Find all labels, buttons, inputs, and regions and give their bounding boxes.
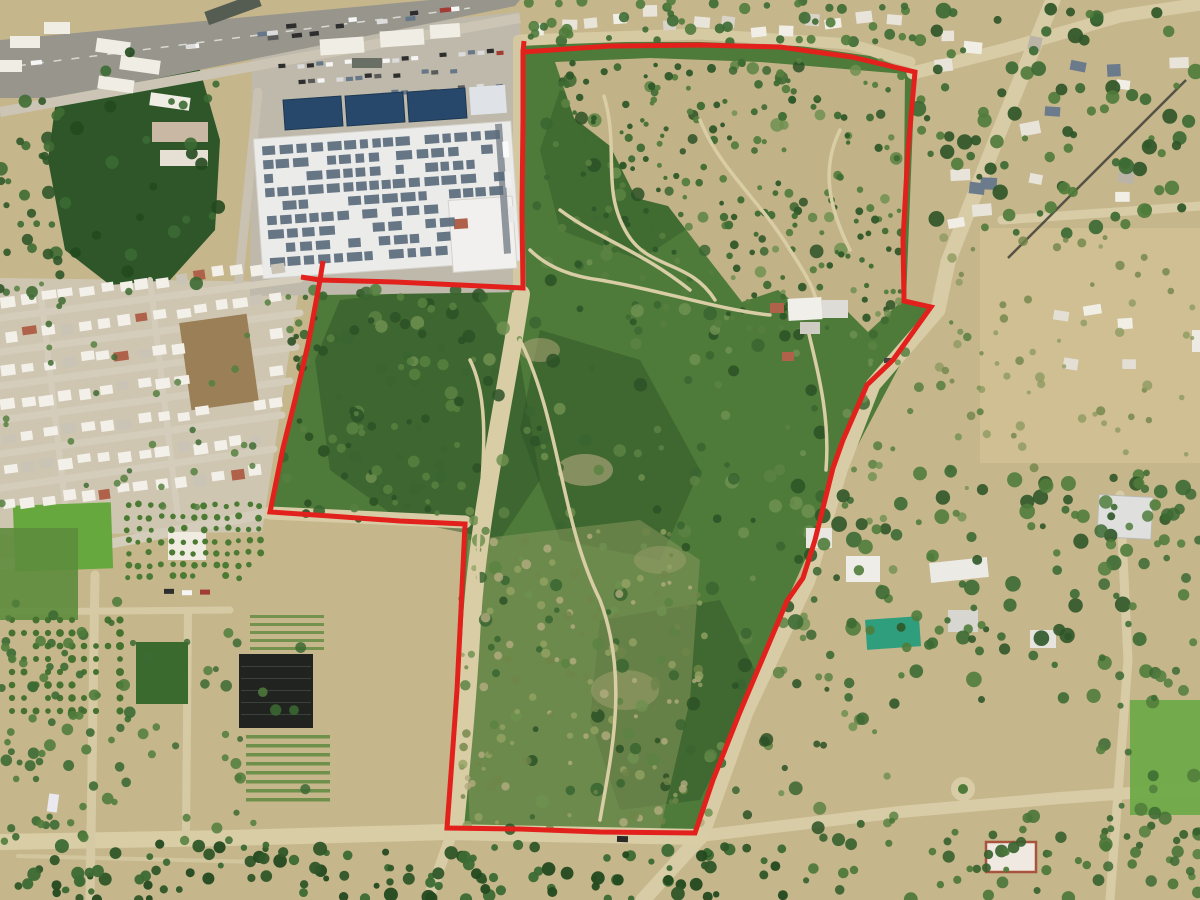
shrub [1181,573,1191,583]
shrub [1099,495,1112,508]
shrub [845,133,850,138]
shrub [465,507,474,516]
shrub [1177,539,1185,547]
house-roof [193,442,209,455]
shrub [759,870,768,879]
shrub [386,878,393,885]
orchard-tree [214,526,219,531]
shrub [488,750,492,754]
shrub [613,444,626,457]
solar-panel-row [296,143,307,153]
shrub [183,814,191,822]
shrub [300,880,308,888]
shrub [824,673,833,682]
shrub [966,532,976,542]
shrub [567,813,571,817]
shrub [751,292,757,298]
shrub [966,152,975,161]
shrub [880,523,891,534]
shrub [570,671,577,678]
shrub [400,319,410,329]
shrub [872,524,882,534]
shrub [869,22,878,31]
house-roof [138,377,152,388]
shrub [556,597,563,604]
shrub [774,464,785,475]
shrub [1063,237,1069,243]
shrub [901,3,908,10]
orchard-tree [190,573,195,578]
solar-panel-row [298,199,308,209]
shrub [832,833,845,846]
shrub [42,186,55,199]
shrub [1087,689,1101,703]
shrub [190,277,203,290]
shrub [328,434,337,443]
shrub [850,331,858,339]
shrub [375,320,388,333]
shrub [17,221,24,228]
shrub [889,565,898,574]
shrub [619,12,629,22]
boundary-tick [301,277,320,280]
shrub [56,303,62,309]
shrub [944,617,950,623]
shrub [758,235,766,243]
shrub [973,865,981,873]
shrub [1129,602,1137,610]
shrub [529,842,540,853]
shrub [1019,826,1027,834]
orchard-tree [137,515,142,520]
shrub [1056,84,1068,96]
solar-panel-row [449,189,461,199]
orchard-tree [81,643,88,650]
house-roof [153,309,167,320]
shrub [1068,187,1078,197]
shrub [620,182,626,188]
orchard-tree [235,563,241,569]
orchard-tree [180,561,186,567]
shrub [1,838,8,845]
shrub [947,253,957,263]
shrub [490,538,498,546]
shrub [233,638,242,647]
solar-panel-row [406,206,419,216]
solar-panel-row [334,253,344,263]
house-roof [42,496,56,506]
orchard-tree [57,643,64,650]
shrub [195,158,208,171]
solar-panel-row [410,234,420,244]
shrub [975,646,984,655]
shrub [886,246,892,252]
house-roof [176,273,188,285]
shrub [741,628,752,639]
shrub [1089,220,1103,234]
shrub [1098,244,1103,249]
solar-panel-row [287,228,298,238]
shrub [687,108,693,114]
shrub [86,728,95,737]
shrub [965,486,969,490]
shrub [419,356,430,367]
shrub [1087,106,1096,115]
shrub [589,365,595,371]
orchard-tree [181,525,188,532]
solar-panel-row [396,150,413,160]
shrub [621,579,630,588]
house-roof [38,395,54,408]
solar-panel-row [355,167,365,177]
shrub [566,71,574,79]
solar-panel-row [485,130,500,140]
orchard-tree [148,502,154,508]
solar-panel-row [389,249,404,259]
solar-panel-row [437,232,451,242]
shrub [631,600,636,605]
shrub [875,311,881,317]
shrub [202,873,214,885]
shrub [1172,141,1181,150]
shrub [1053,243,1061,251]
truck [504,171,511,187]
solar-panel-row [394,235,408,245]
shrub [848,722,857,731]
solar-panel-row [306,170,322,180]
house-roof [79,388,92,400]
shrub [656,655,666,665]
shrub [434,460,443,469]
shrub [1046,850,1053,857]
shrub [890,446,895,451]
orchard-tree [212,502,218,508]
shrub [663,875,673,885]
shrub [114,480,121,487]
shrub [1168,879,1179,890]
shrub [747,62,759,74]
nursery-row [250,639,324,642]
shrub [1107,825,1114,832]
shrub [825,4,833,12]
shrub [1062,126,1073,137]
shrub [780,294,786,300]
shrub [337,444,346,453]
shrub [977,484,988,495]
shrub [746,325,752,331]
shrub [936,490,950,504]
shrub [1062,364,1066,368]
solar-panel-row [293,157,309,167]
shrub [713,514,722,523]
shrub [739,3,750,14]
shrub [27,243,37,253]
shrub [942,367,949,374]
shrub [1128,414,1135,421]
shrub [1173,83,1179,89]
shrub [346,443,352,449]
shrub [565,30,573,38]
car [468,50,475,55]
shrub [569,60,575,66]
orchard-tree [69,617,75,623]
shrub [390,312,401,323]
solar-panel-row [442,133,451,143]
shrub [576,94,583,101]
orchard-tree [57,617,63,623]
shrub [698,212,709,223]
shrub [1115,261,1124,270]
shrub [297,418,303,424]
house-roof [271,263,286,275]
shrub [776,69,784,77]
shrub [1119,803,1125,809]
shrub [358,424,364,430]
shrub [159,503,166,510]
shrub [212,81,219,88]
shrub [547,887,557,897]
shrub [445,846,458,859]
shrub [63,760,74,771]
open-field [980,228,1200,463]
shrub [951,158,964,171]
shrub [43,249,54,260]
shrub [478,292,488,302]
terracotta-shed [782,352,794,361]
shrub [61,650,68,657]
shrub [687,697,700,710]
shrub [884,773,891,780]
shrub [203,849,215,861]
shrub [1165,181,1179,195]
shrub [782,765,788,771]
shrub [707,64,716,73]
shrub [318,346,328,356]
shrub [468,651,475,658]
shrub [1133,478,1144,489]
orchard-tree [137,574,143,580]
shrub [458,851,471,864]
house-roof [57,390,71,402]
shrub [730,316,735,321]
shrub [738,59,746,67]
orchard-tree [45,630,51,636]
farm-road [90,575,95,900]
shrub [984,850,993,859]
shrub [546,354,560,368]
shrub [461,794,466,799]
shrub [626,314,631,319]
shrub [1016,421,1025,430]
shrub [323,876,329,882]
shrub [884,310,891,317]
shrub [1185,489,1196,500]
shrub [914,34,926,46]
shrub [650,101,655,106]
shrub [1161,508,1174,521]
shrub [19,95,32,108]
solar-panel-row [327,155,337,165]
shrub [1134,803,1147,816]
shrub [1076,510,1089,523]
shrub [45,321,52,328]
house-roof [214,440,228,451]
shrub [760,247,769,256]
shrub [570,658,577,665]
car [458,52,465,57]
shrub [1003,867,1009,873]
shrub [53,256,62,265]
solar-panel-row [461,174,477,184]
shrub [341,473,348,480]
orchard-tree [116,707,123,714]
shrub [820,742,827,749]
shrub [184,138,197,151]
orchard-tree [193,539,198,544]
shrub [1000,314,1008,322]
shrub [833,574,840,581]
shrub [483,353,495,365]
shade-grid-line [241,702,311,703]
shrub [33,776,39,782]
shrub [1107,815,1114,822]
orchard-tree [234,501,239,506]
shrub [850,287,856,293]
car [487,49,494,54]
shrub [172,742,179,749]
shrub [335,393,342,400]
shrub [583,733,589,739]
solar-panel-row [369,152,380,162]
shrub [225,836,233,844]
shrub [944,837,952,845]
shrub [894,155,900,161]
shrub [7,728,15,736]
shrub [745,299,750,304]
shrub [574,260,582,268]
shrub [737,196,744,203]
house-roof [269,397,283,408]
orchard-tree [190,551,195,556]
shrub [571,624,576,629]
shrub [949,320,953,324]
shrub [547,18,557,28]
shrub [989,831,998,840]
shrub [659,233,665,239]
shrub [926,553,934,561]
orchard-tree [159,513,165,519]
farm-shed [168,532,206,560]
solar-panel-row [440,161,449,171]
shrub [1029,349,1036,356]
shrub [897,209,902,214]
shrub [249,442,257,450]
solar-panel-row [343,168,353,178]
shade-grid-line [241,690,311,691]
nursery-row [250,615,324,618]
shrub [543,545,551,553]
shrub [778,112,787,121]
shrub [686,70,693,77]
shrub [462,369,469,376]
shrub [1113,593,1119,599]
shrub [244,332,250,338]
shrub [631,188,645,202]
orchard-tree [224,504,229,509]
shrub [46,663,54,671]
shrub [751,147,758,154]
orchard-tree [126,537,132,543]
house-roof [193,475,208,488]
house-roof [116,419,132,431]
shrub [827,262,834,269]
shrub [914,382,924,392]
orchard-tree [146,515,152,521]
shrub [947,49,956,58]
shrub [309,862,321,874]
shrub [458,760,467,769]
shrub [148,750,156,758]
shrub [108,620,114,626]
shrub [663,176,667,180]
orchard-tree [201,514,207,520]
shrub [60,197,72,209]
shrub [354,411,359,416]
shrub [496,885,506,895]
shrub [971,135,981,145]
shrub [1103,861,1113,871]
shrub [63,638,74,649]
solar-panel-row [395,165,404,175]
shrub [491,368,499,376]
solar-panel-row [370,166,381,176]
shrub [407,358,415,366]
shrub [521,559,531,569]
shrub [620,130,624,134]
shrub [459,743,468,752]
shrub [537,623,545,631]
shrub [648,83,656,91]
shrub [813,741,820,748]
shrub [435,882,443,890]
shrub [1189,304,1195,310]
green-field [0,528,78,620]
shrub [715,381,723,389]
shrub [488,644,495,651]
solar-panel-row [453,160,464,170]
shrub [953,876,961,884]
shrub [1115,427,1121,433]
shrub [648,859,654,865]
house-roof [231,469,245,481]
shrub [3,422,8,427]
house-roof [963,41,983,54]
shrub [417,298,427,308]
shrub [850,65,861,76]
shrub [1162,109,1177,124]
shrub [479,683,488,692]
shrub [406,864,414,872]
shrub [1154,540,1161,547]
nursery-row [246,798,330,802]
shrub [1034,630,1050,646]
shrub [636,700,648,712]
shrub [1003,209,1016,222]
shrub [1162,268,1170,276]
shrub [671,887,685,900]
shrub [1142,510,1153,521]
shrub [587,534,592,539]
